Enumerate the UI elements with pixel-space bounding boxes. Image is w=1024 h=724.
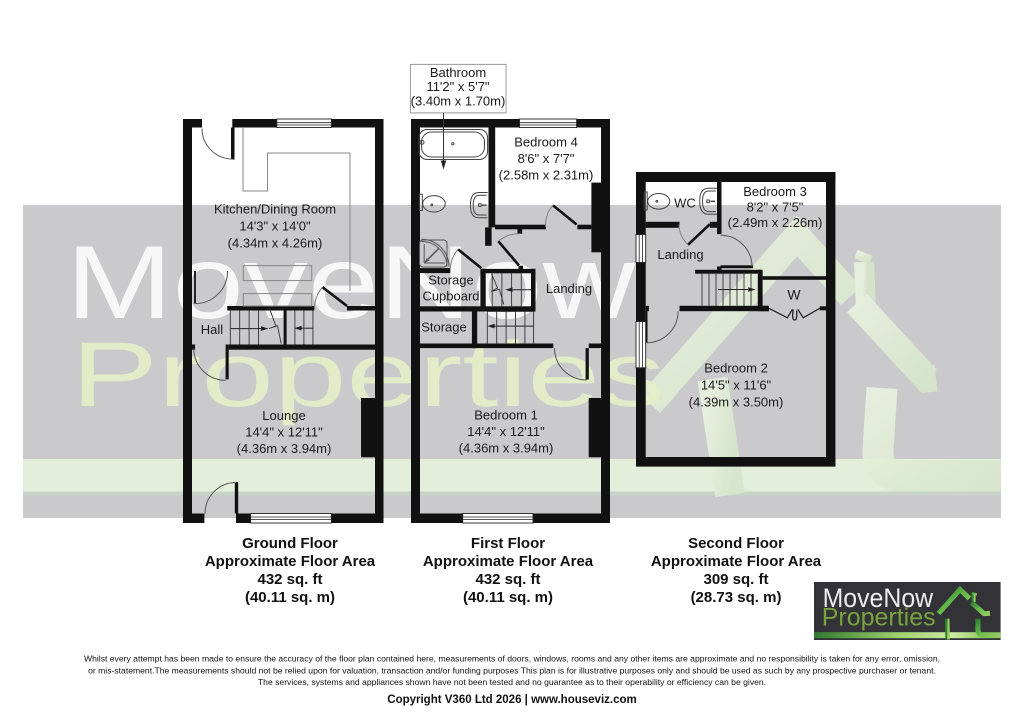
svg-text:8'6" x 7'7": 8'6" x 7'7" [518, 151, 575, 166]
svg-text:Copyright V360 Ltd 2026 | www.: Copyright V360 Ltd 2026 | www.houseviz.c… [387, 694, 636, 706]
svg-text:309 sq. ft: 309 sq. ft [703, 571, 768, 588]
svg-text:Bedroom 2: Bedroom 2 [704, 361, 768, 376]
svg-text:14'4" x 12'11": 14'4" x 12'11" [467, 424, 545, 439]
svg-text:14'3" x 14'0": 14'3" x 14'0" [239, 219, 311, 234]
svg-text:14'4" x 12'11": 14'4" x 12'11" [245, 425, 323, 440]
svg-text:(4.39m x 3.50m): (4.39m x 3.50m) [689, 395, 784, 410]
svg-text:Bedroom 4: Bedroom 4 [514, 135, 578, 150]
svg-text:Landing: Landing [546, 281, 592, 296]
svg-text:W: W [787, 287, 801, 303]
svg-text:Storage: Storage [421, 320, 467, 335]
svg-text:The services, systems and appl: The services, systems and appliances sho… [258, 677, 766, 687]
svg-text:(4.34m x 4.26m): (4.34m x 4.26m) [228, 236, 323, 251]
svg-text:Cupboard: Cupboard [422, 289, 479, 304]
svg-text:Approximate Floor Area: Approximate Floor Area [423, 553, 594, 570]
svg-text:Storage: Storage [428, 273, 474, 288]
svg-text:(2.58m x 2.31m): (2.58m x 2.31m) [499, 168, 594, 183]
svg-text:Bathroom: Bathroom [430, 65, 486, 80]
svg-text:Bedroom 1: Bedroom 1 [474, 408, 538, 423]
svg-text:Kitchen/Dining Room: Kitchen/Dining Room [214, 202, 336, 217]
svg-text:(3.40m x 1.70m): (3.40m x 1.70m) [411, 94, 506, 109]
svg-text:Approximate Floor Area: Approximate Floor Area [205, 553, 376, 570]
svg-text:8'2" x 7'5": 8'2" x 7'5" [747, 200, 804, 215]
svg-text:First Floor: First Floor [471, 535, 545, 552]
svg-text:(28.73 sq. m): (28.73 sq. m) [691, 589, 782, 606]
svg-text:(4.36m x 3.94m): (4.36m x 3.94m) [237, 441, 332, 456]
svg-text:(2.49m x 2.26m): (2.49m x 2.26m) [728, 215, 823, 230]
svg-text:11'2" x 5'7": 11'2" x 5'7" [426, 79, 489, 94]
svg-text:or mis-statement.The measureme: or mis-statement.The measurements should… [88, 665, 936, 675]
svg-text:14'5" x 11'6": 14'5" x 11'6" [701, 378, 772, 393]
svg-text:Properties: Properties [822, 603, 936, 631]
svg-text:Second Floor: Second Floor [688, 535, 784, 552]
svg-text:WC: WC [674, 196, 696, 211]
svg-text:(40.11 sq. m): (40.11 sq. m) [245, 589, 335, 606]
svg-text:Whilst every attempt has been: Whilst every attempt has been made to en… [84, 654, 940, 664]
svg-text:Hall: Hall [201, 322, 224, 337]
svg-text:Approximate Floor Area: Approximate Floor Area [651, 553, 822, 570]
svg-text:Landing: Landing [657, 247, 703, 262]
svg-text:432 sq. ft: 432 sq. ft [257, 571, 322, 588]
svg-text:432 sq. ft: 432 sq. ft [475, 571, 540, 588]
svg-text:Lounge: Lounge [262, 408, 305, 423]
svg-text:(40.11 sq. m): (40.11 sq. m) [463, 589, 553, 606]
svg-text:Bedroom 3: Bedroom 3 [743, 184, 807, 199]
svg-text:(4.36m x 3.94m): (4.36m x 3.94m) [459, 441, 554, 456]
svg-text:Ground Floor: Ground Floor [242, 535, 338, 552]
